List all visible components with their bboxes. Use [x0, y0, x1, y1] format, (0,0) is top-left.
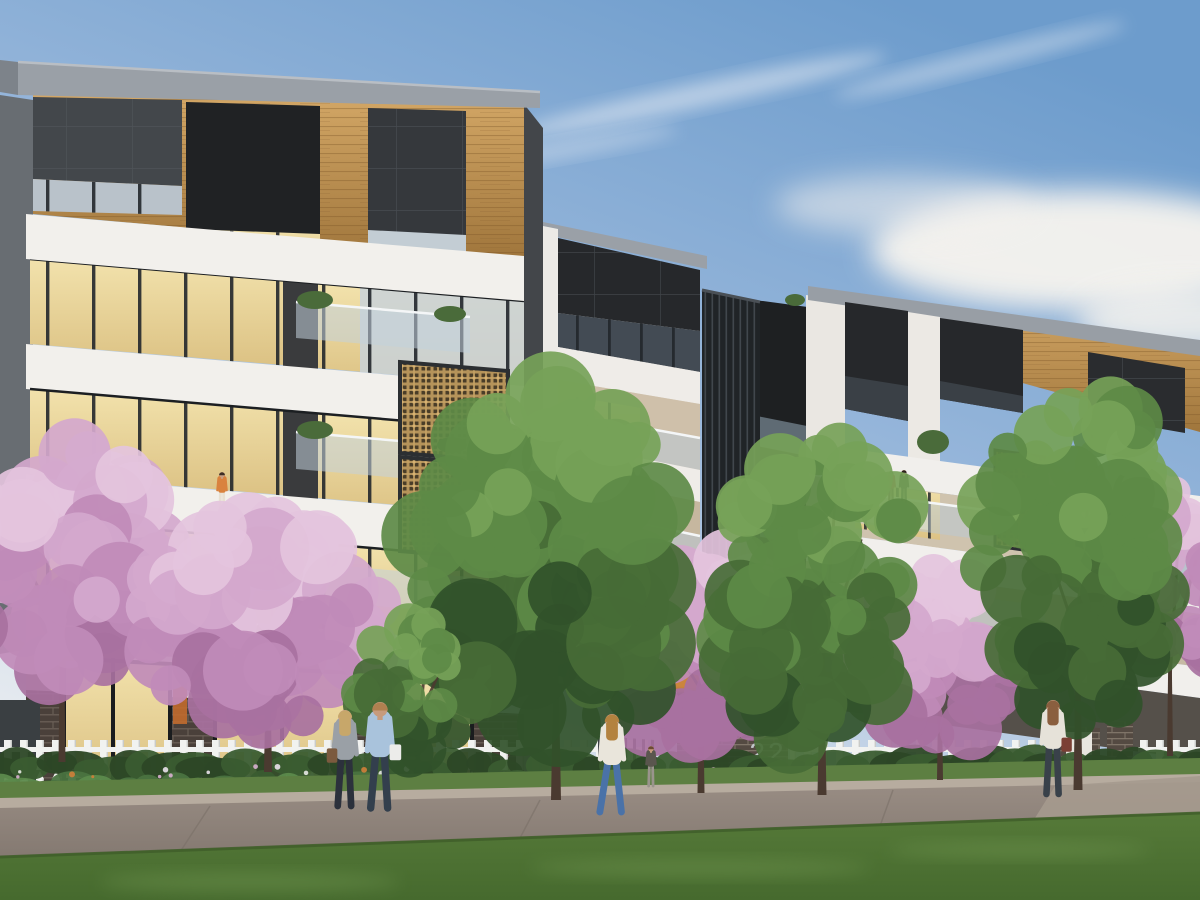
flower [275, 764, 281, 770]
foliage-blob [830, 599, 866, 635]
foliage-blob [95, 446, 152, 503]
flower [206, 771, 210, 775]
flower [158, 775, 161, 778]
ground-planes [0, 758, 1200, 900]
foliage-blob [1098, 546, 1153, 601]
flower [361, 767, 367, 773]
foliage-blob [876, 498, 921, 543]
foliage-blob [423, 688, 458, 723]
foliage-blob [718, 478, 772, 532]
person-leg [384, 753, 387, 808]
foliage-blob [939, 698, 1002, 761]
foliage-blob [588, 476, 677, 565]
flower [69, 771, 75, 777]
foliage-blob [1014, 623, 1066, 675]
foliage-blob [422, 644, 452, 674]
left-block-box1-grid [33, 97, 182, 186]
person-leg [649, 765, 650, 786]
foliage-blob [484, 468, 532, 516]
foliage-blob [290, 595, 355, 660]
foliage-blob [1022, 555, 1062, 595]
person-arm [655, 752, 656, 764]
foliage-blob [74, 577, 120, 623]
foliage-blob [782, 506, 831, 555]
flower [16, 775, 19, 778]
person-arm [367, 718, 370, 751]
foliage-blob [988, 433, 1027, 472]
foliage-blob [193, 501, 246, 554]
flower [18, 770, 21, 773]
person-bag [327, 748, 338, 762]
foliage-blob [520, 366, 595, 441]
rendered-scene: 22 [0, 0, 1200, 900]
person-arm [621, 729, 624, 759]
person-arm [1042, 714, 1045, 743]
person-leg [338, 756, 341, 806]
person-long-hair [339, 717, 351, 736]
person-leg [1046, 745, 1049, 794]
person-arm [646, 752, 647, 764]
left-block-box3-grid [368, 108, 466, 251]
flower [91, 775, 94, 778]
flower [304, 771, 309, 776]
foliage-blob [588, 570, 647, 629]
cloud-mid [775, 175, 1035, 235]
foliage-blob [203, 631, 283, 711]
person-bag [1061, 738, 1071, 752]
foliage-blob [528, 561, 592, 625]
person-long-hair [606, 721, 618, 741]
flower [163, 767, 168, 772]
right-block-balcony-plant [917, 430, 949, 454]
foliage-blob [419, 456, 480, 517]
foliage-blob [823, 441, 893, 511]
flower [253, 764, 258, 769]
person-arm [217, 478, 218, 490]
foliage-blob [467, 393, 528, 454]
person-leg [371, 753, 376, 808]
person-long-hair [1047, 707, 1058, 726]
person-arm [354, 724, 357, 754]
foliage-blob [1095, 680, 1143, 728]
person-bag [390, 744, 402, 760]
flower [169, 773, 173, 777]
scene-canvas: 22 [0, 0, 1200, 900]
foliage-blob [283, 695, 324, 736]
person-arm [226, 478, 227, 490]
foliage-blob [280, 510, 354, 584]
foliage-blob [34, 626, 104, 696]
person-leg [1057, 745, 1059, 794]
foliage-blob [923, 619, 963, 659]
left-block-fascia-return [0, 60, 18, 95]
foliage-blob [727, 563, 792, 628]
foliage-blob [1059, 493, 1108, 542]
person-leg [349, 756, 351, 806]
foliage-blob [151, 665, 191, 705]
person-arm [600, 729, 603, 759]
foliage-blob [969, 507, 1018, 556]
left-block-charcoal-box-2 [186, 102, 320, 241]
